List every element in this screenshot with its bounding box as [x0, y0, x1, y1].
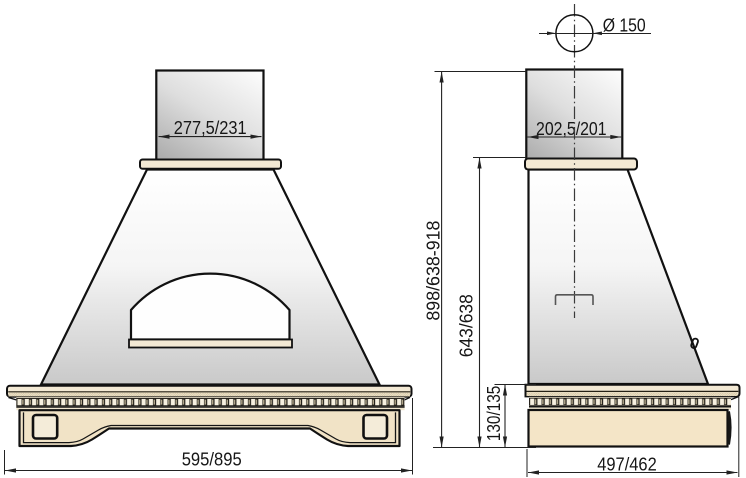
- svg-text:Ø 150: Ø 150: [603, 15, 646, 35]
- svg-text:277,5/231: 277,5/231: [174, 118, 247, 138]
- svg-text:497/462: 497/462: [597, 454, 657, 474]
- svg-text:202,5/201: 202,5/201: [536, 119, 607, 139]
- svg-text:898/638-918: 898/638-918: [424, 221, 444, 321]
- svg-text:595/895: 595/895: [182, 450, 242, 470]
- svg-text:130/135: 130/135: [484, 386, 504, 442]
- svg-text:643/638: 643/638: [457, 294, 477, 357]
